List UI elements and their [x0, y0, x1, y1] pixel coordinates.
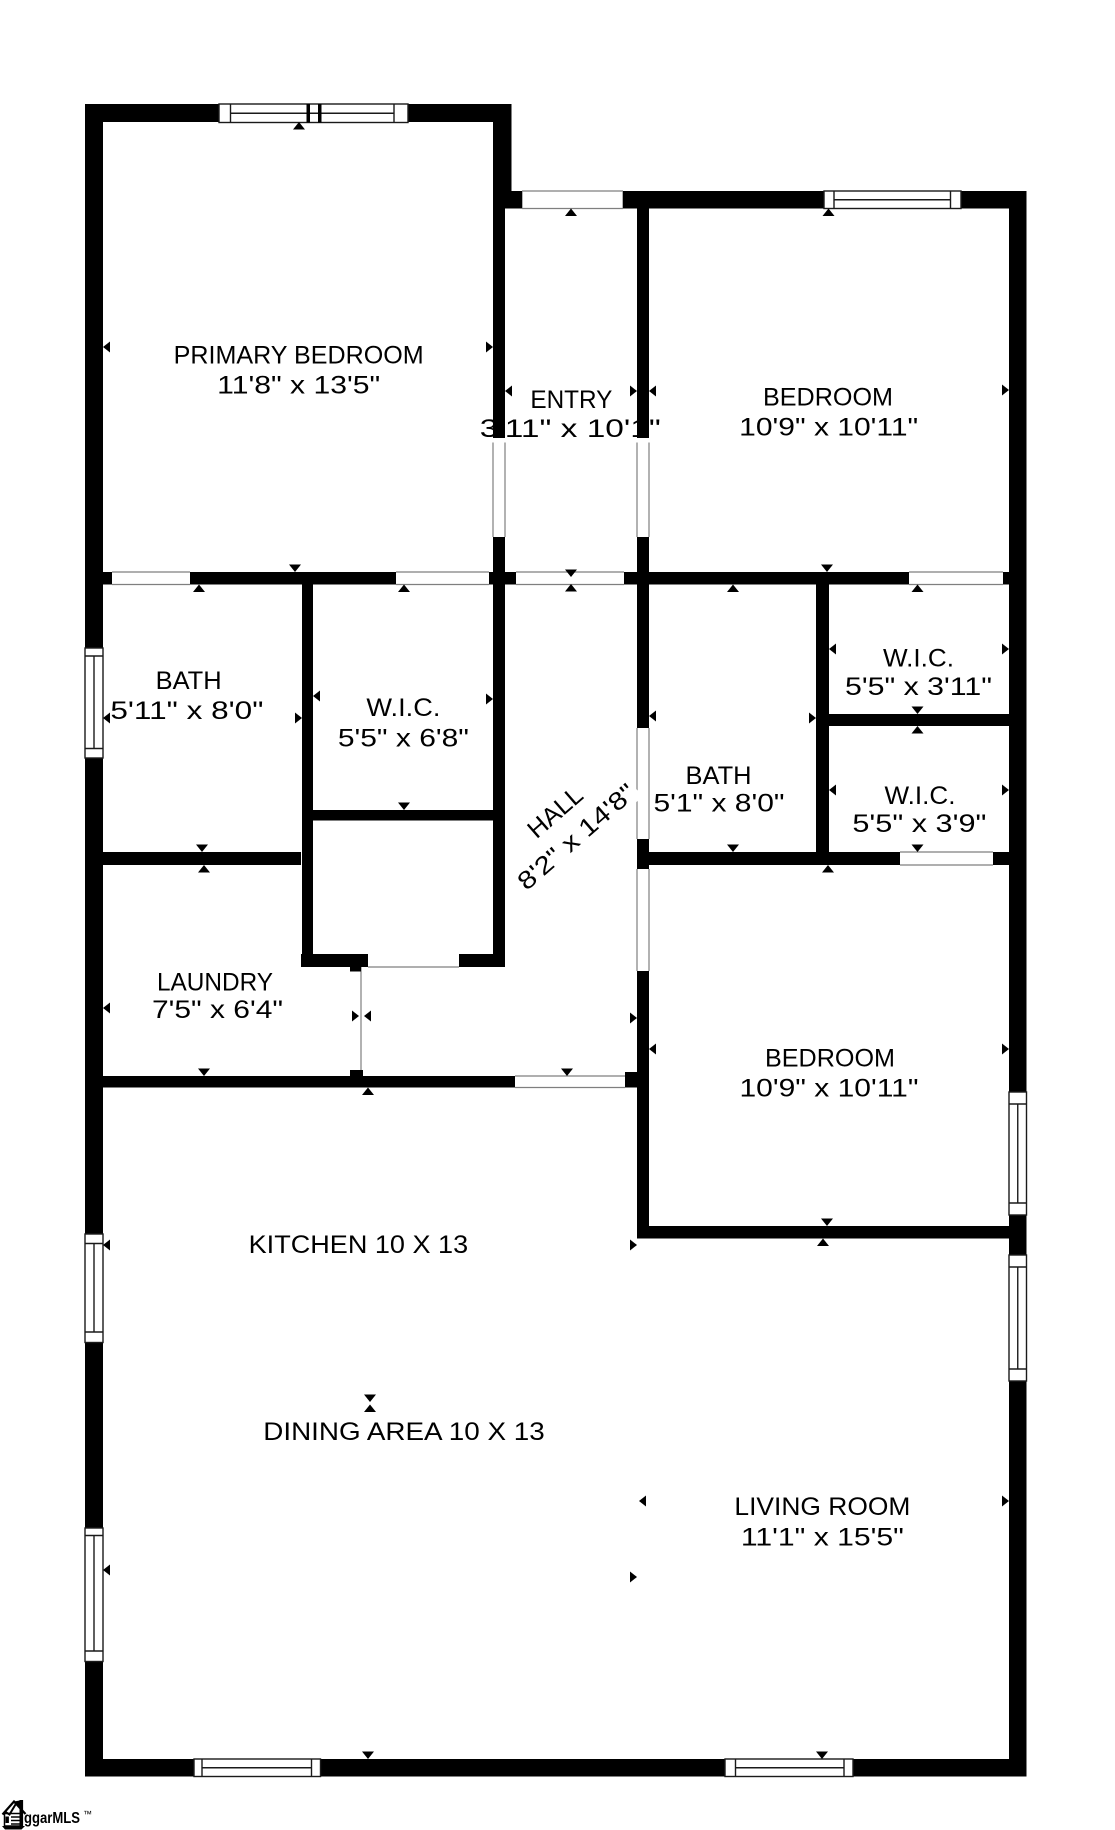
- svg-text:LAUNDRY: LAUNDRY: [157, 969, 273, 997]
- svg-text:PRIMARY BEDROOM: PRIMARY BEDROOM: [174, 342, 424, 370]
- svg-text:ggarMLS: ggarMLS: [24, 1810, 80, 1827]
- svg-text:BEDROOM: BEDROOM: [765, 1045, 895, 1073]
- svg-text:5'1" x 8'0": 5'1" x 8'0": [654, 790, 785, 818]
- svg-text:3'11" x 10'1": 3'11" x 10'1": [480, 415, 661, 443]
- svg-text:W.I.C.: W.I.C.: [366, 694, 440, 722]
- svg-text:BEDROOM: BEDROOM: [763, 384, 893, 412]
- svg-text:5'5" x 3'11": 5'5" x 3'11": [845, 673, 992, 701]
- svg-text:11'8" x 13'5": 11'8" x 13'5": [217, 372, 380, 400]
- svg-text:BATH: BATH: [156, 667, 222, 695]
- svg-text:™: ™: [83, 1809, 92, 1819]
- svg-text:10'9" x 10'11": 10'9" x 10'11": [740, 1075, 919, 1103]
- svg-text:5'11" x 8'0": 5'11" x 8'0": [110, 697, 263, 725]
- svg-text:DINING AREA 10 X 13: DINING AREA 10 X 13: [263, 1418, 545, 1446]
- svg-text:5'5" x 3'9": 5'5" x 3'9": [852, 810, 986, 838]
- svg-text:W.I.C.: W.I.C.: [885, 782, 956, 810]
- svg-text:7'5" x 6'4": 7'5" x 6'4": [152, 996, 283, 1024]
- svg-text:11'1" x 15'5": 11'1" x 15'5": [741, 1524, 904, 1552]
- svg-text:KITCHEN 10 X 13: KITCHEN 10 X 13: [249, 1231, 469, 1259]
- svg-text:BATH: BATH: [686, 762, 752, 790]
- svg-text:10'9" x 10'11": 10'9" x 10'11": [739, 414, 918, 442]
- svg-text:ENTRY: ENTRY: [530, 386, 612, 414]
- svg-text:LIVING ROOM: LIVING ROOM: [734, 1493, 910, 1521]
- svg-text:W.I.C.: W.I.C.: [883, 645, 954, 673]
- svg-text:5'5" x 6'8": 5'5" x 6'8": [338, 725, 469, 753]
